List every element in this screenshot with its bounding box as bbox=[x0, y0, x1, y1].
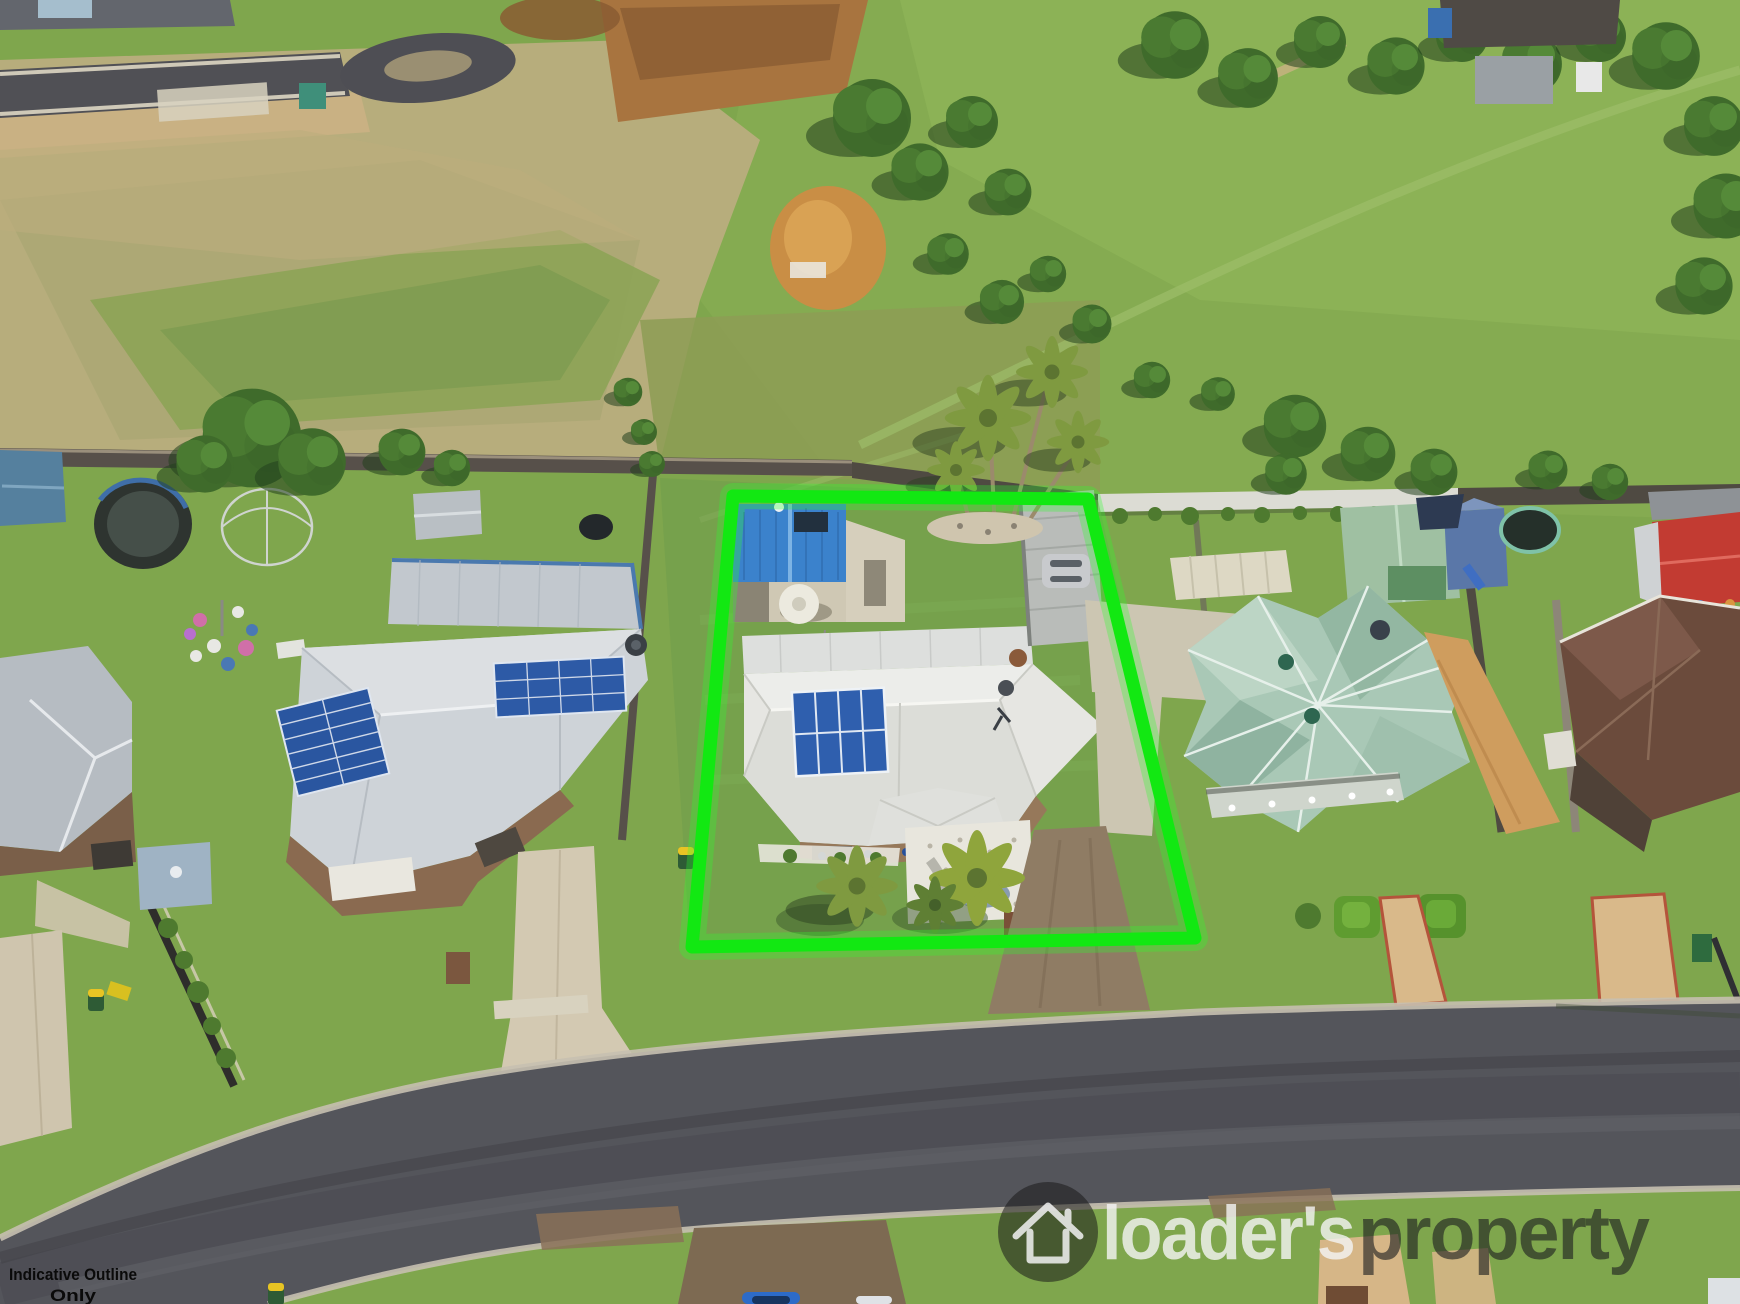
indicative-note-line1: Indicative Outline bbox=[9, 1265, 137, 1284]
driveway bbox=[1592, 894, 1678, 1004]
wheelie-bin bbox=[268, 1283, 284, 1304]
roof-vent bbox=[1278, 654, 1294, 670]
watermark-badge bbox=[998, 1182, 1098, 1282]
dark-roof-house bbox=[1440, 0, 1620, 48]
skylight bbox=[794, 512, 828, 532]
caravan bbox=[1576, 62, 1602, 92]
parked-car bbox=[1042, 554, 1090, 588]
satellite-dish bbox=[1370, 620, 1390, 640]
white-car bbox=[856, 1296, 892, 1304]
blue-car bbox=[742, 1292, 800, 1304]
grey-shed bbox=[1475, 56, 1553, 104]
watermark-brand-left: loader's bbox=[1102, 1191, 1354, 1276]
blue-truck bbox=[1428, 8, 1452, 38]
shed-door bbox=[864, 560, 886, 606]
white-object bbox=[1708, 1278, 1740, 1304]
watermark-brand-right: property bbox=[1358, 1191, 1650, 1276]
shade-sail bbox=[1416, 494, 1464, 530]
utility-box bbox=[299, 83, 326, 109]
timber-deck bbox=[1326, 1286, 1368, 1304]
long-driveway bbox=[0, 930, 72, 1146]
white-gate bbox=[1544, 730, 1577, 770]
green-bin bbox=[1692, 934, 1712, 962]
roof-vent bbox=[1304, 708, 1320, 724]
tarp bbox=[790, 262, 826, 278]
roller-door bbox=[1388, 566, 1446, 600]
solar-panel-array bbox=[494, 657, 627, 718]
aerial-scene: loader's property Indicative Outline Onl… bbox=[0, 0, 1740, 1304]
indicative-note-line2: Only bbox=[50, 1286, 97, 1304]
dirt-apron bbox=[678, 1220, 906, 1304]
roof-vent bbox=[1009, 649, 1027, 667]
wheelie-bin bbox=[88, 989, 104, 1011]
rear-roof bbox=[388, 558, 641, 629]
satellite-dish bbox=[998, 680, 1014, 696]
pergola bbox=[1170, 550, 1292, 600]
letterbox bbox=[446, 952, 470, 984]
solar-panel-array bbox=[792, 688, 888, 777]
distant-roofs bbox=[0, 0, 235, 30]
spa bbox=[579, 514, 613, 540]
aerial-photo: loader's property Indicative Outline Onl… bbox=[0, 0, 1740, 1304]
